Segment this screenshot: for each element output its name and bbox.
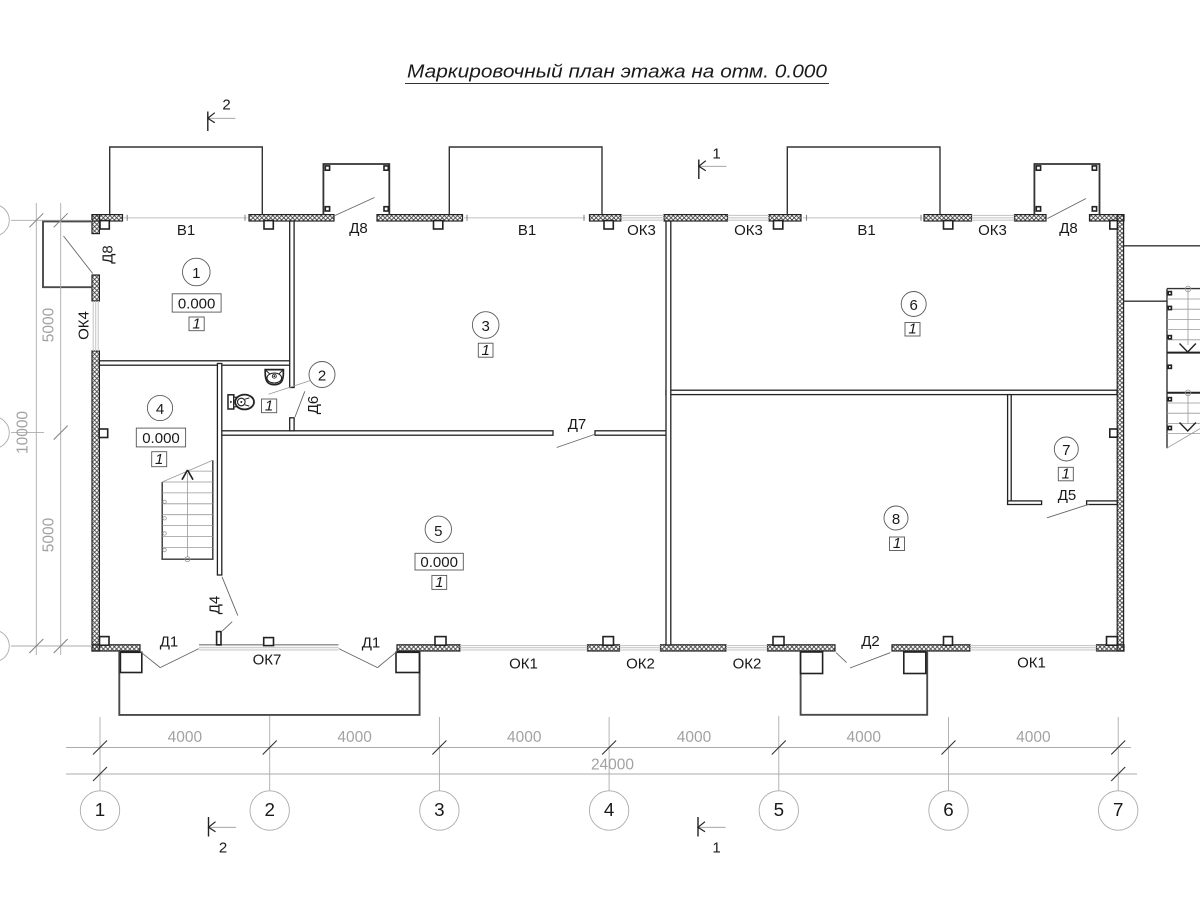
svg-text:4000: 4000 (337, 729, 372, 746)
svg-text:2: 2 (219, 840, 227, 857)
svg-text:Д4: Д4 (207, 596, 224, 615)
svg-text:5000: 5000 (41, 307, 58, 342)
svg-text:6: 6 (910, 297, 918, 314)
svg-text:8: 8 (892, 511, 900, 528)
svg-text:Д6: Д6 (305, 396, 322, 415)
svg-text:1: 1 (265, 397, 273, 414)
svg-text:2: 2 (264, 799, 274, 820)
svg-text:1: 1 (155, 451, 163, 468)
svg-text:1: 1 (1062, 466, 1070, 483)
svg-text:7: 7 (1062, 442, 1070, 459)
svg-text:4000: 4000 (677, 729, 712, 746)
svg-text:5: 5 (774, 799, 784, 820)
svg-text:В1: В1 (857, 222, 875, 239)
svg-text:3: 3 (434, 799, 444, 820)
svg-text:0.000: 0.000 (178, 295, 216, 312)
svg-text:4000: 4000 (846, 729, 881, 746)
svg-text:1: 1 (712, 840, 720, 857)
svg-text:Д1: Д1 (160, 634, 179, 651)
svg-text:В1: В1 (518, 222, 536, 239)
svg-text:В1: В1 (177, 222, 195, 239)
svg-text:5: 5 (434, 523, 442, 540)
svg-text:ОК2: ОК2 (733, 656, 762, 673)
svg-text:4000: 4000 (507, 729, 542, 746)
svg-text:Д8: Д8 (100, 245, 117, 264)
svg-text:ОК1: ОК1 (509, 656, 538, 673)
svg-text:Маркировочный план этажа на от: Маркировочный план этажа на отм. 0.000 (407, 61, 828, 82)
svg-text:5000: 5000 (41, 517, 58, 552)
svg-text:3: 3 (482, 318, 490, 335)
svg-text:24000: 24000 (591, 757, 634, 774)
svg-text:ОК3: ОК3 (734, 222, 763, 239)
svg-text:1: 1 (712, 146, 720, 163)
svg-text:Д2: Д2 (861, 633, 880, 650)
svg-text:1: 1 (192, 315, 200, 332)
svg-text:ОК1: ОК1 (1017, 655, 1046, 672)
svg-text:Д8: Д8 (349, 220, 368, 237)
svg-text:1: 1 (482, 342, 490, 359)
svg-text:4: 4 (604, 799, 614, 820)
svg-text:ОК7: ОК7 (253, 652, 282, 669)
svg-text:4000: 4000 (1016, 729, 1051, 746)
svg-text:ОК3: ОК3 (627, 222, 656, 239)
svg-text:4000: 4000 (168, 729, 203, 746)
svg-text:0.000: 0.000 (420, 554, 458, 571)
svg-text:1: 1 (908, 321, 916, 338)
svg-text:ОК2: ОК2 (626, 656, 655, 673)
svg-text:Д5: Д5 (1058, 487, 1077, 504)
svg-text:1: 1 (95, 799, 105, 820)
svg-text:ОК4: ОК4 (76, 311, 93, 340)
svg-text:10000: 10000 (15, 411, 32, 454)
svg-text:2: 2 (318, 367, 326, 384)
svg-text:Д1: Д1 (362, 635, 381, 652)
svg-text:Д8: Д8 (1059, 220, 1078, 237)
svg-text:Д7: Д7 (568, 416, 587, 433)
svg-text:1: 1 (435, 574, 443, 591)
svg-text:6: 6 (943, 799, 953, 820)
svg-text:1: 1 (893, 535, 901, 552)
svg-text:2: 2 (222, 97, 230, 114)
svg-text:ОК3: ОК3 (978, 222, 1007, 239)
svg-text:4: 4 (156, 401, 164, 418)
svg-text:0.000: 0.000 (142, 430, 180, 447)
svg-text:7: 7 (1113, 799, 1123, 820)
svg-text:1: 1 (192, 265, 200, 282)
